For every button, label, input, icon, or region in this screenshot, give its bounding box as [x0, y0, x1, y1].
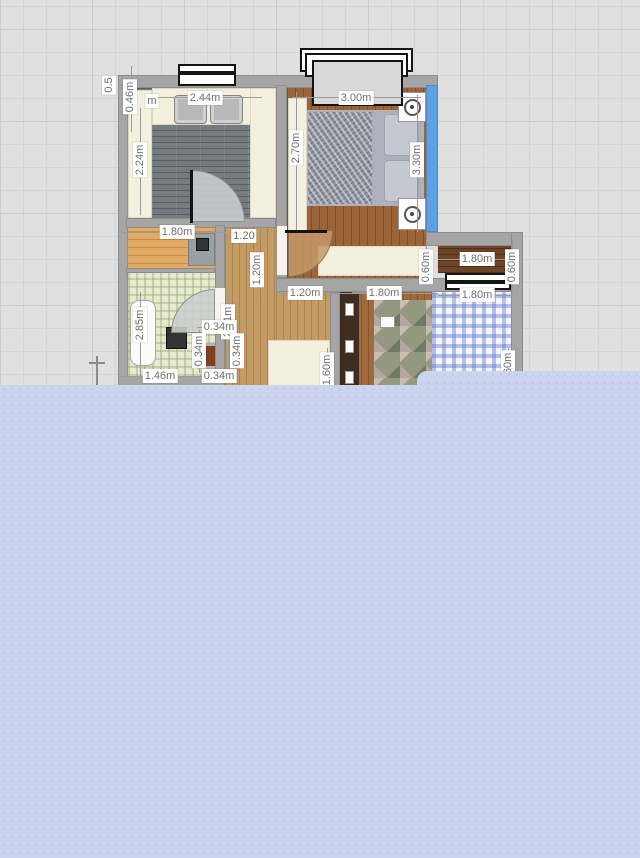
dimension-label: 0.60m: [505, 250, 519, 285]
dresser[interactable]: [318, 246, 426, 276]
dimension-label: 0.34m: [230, 334, 244, 369]
dimension-label: 1.60m: [320, 353, 334, 388]
dimension-label: 2.85m: [133, 308, 147, 343]
dimension-label: 1.20m: [250, 253, 264, 288]
wall-left[interactable]: [118, 85, 128, 388]
wall-balcony-top[interactable]: [426, 232, 523, 246]
dimension-label: 0.46m: [123, 80, 137, 115]
wall-bath-sep[interactable]: [126, 268, 215, 273]
dimension-label: 2.24m: [133, 143, 147, 178]
plan-canvas[interactable]: 0.50.46mm2.44m3.00m2.24m2.70m3.30m1.80m1…: [0, 0, 640, 858]
wardrobe-handle: [345, 340, 354, 353]
window[interactable]: [178, 64, 236, 73]
dimension-label: 3.00m: [339, 91, 374, 105]
wardrobe-handle: [345, 303, 354, 316]
dimension-label: 1.80m: [460, 288, 495, 302]
door-gap: [277, 226, 287, 275]
dimension-label: 0.60m: [419, 250, 433, 285]
dimension-label: 0.5: [102, 75, 116, 94]
origin-marker-cross: [89, 362, 105, 364]
dimension-label: 0.34m: [202, 320, 237, 334]
wall-accent-blue[interactable]: [426, 85, 438, 232]
origin-marker: [96, 356, 98, 388]
dimension-label: m: [145, 94, 158, 108]
nightstand[interactable]: [398, 198, 426, 230]
dimension-label: 1.80m: [160, 225, 195, 239]
kitchen-counter-right[interactable]: [250, 88, 276, 218]
dimension-label: 1.46m: [143, 369, 178, 383]
door-leaf[interactable]: [190, 170, 193, 223]
dimension-label: 1.20m: [288, 286, 323, 300]
dimension-label: 1.80m: [367, 286, 402, 300]
dimension-label: 2.44m: [188, 91, 223, 105]
dimension-label: 0.34m: [202, 369, 237, 383]
dimension-label: 3.30m: [410, 143, 424, 178]
door-leaf[interactable]: [285, 230, 327, 233]
wardrobe-handle: [345, 371, 354, 384]
bottom-panel: [0, 385, 640, 858]
bed-blanket: [308, 112, 372, 204]
window[interactable]: [445, 273, 511, 282]
dimension-label: 0.34m: [192, 334, 206, 369]
window[interactable]: [178, 73, 236, 86]
dimension-label: 2.70m: [289, 131, 303, 166]
clutter: [380, 316, 395, 328]
dimension-label: 1.20: [231, 229, 256, 243]
desk-item: [196, 238, 209, 251]
dimension-label: 1.80m: [460, 252, 495, 266]
